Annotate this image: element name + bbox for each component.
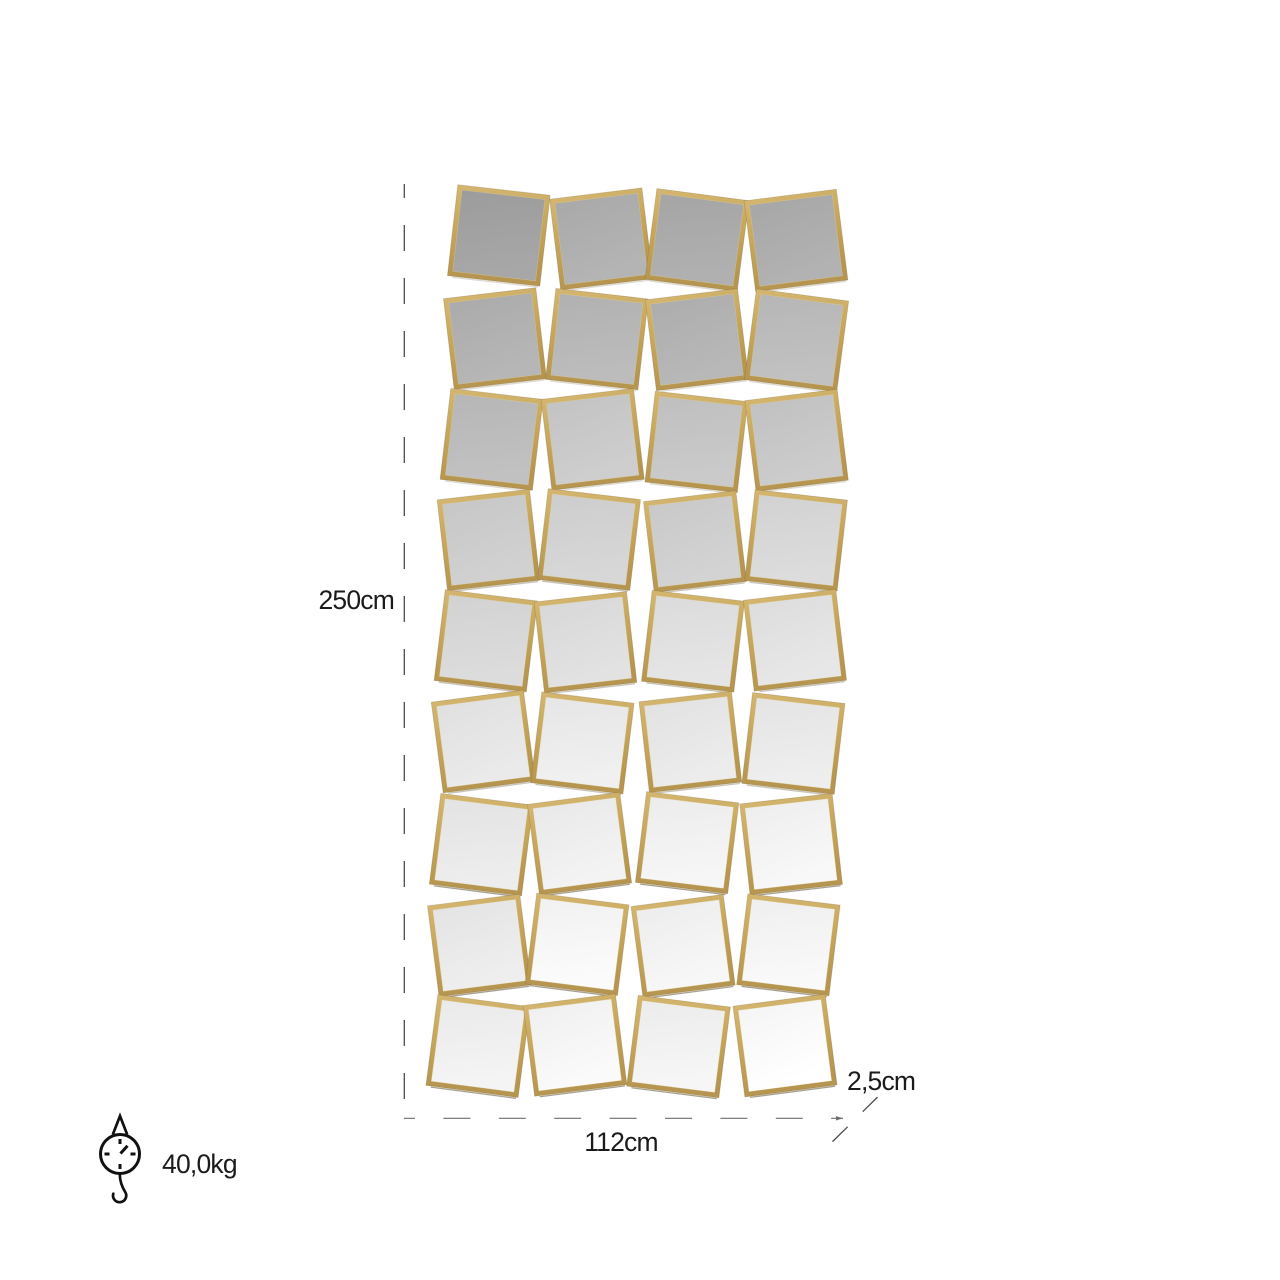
svg-text:112cm: 112cm <box>584 1127 658 1157</box>
svg-text:40,0kg: 40,0kg <box>162 1149 237 1179</box>
svg-text:2,5cm: 2,5cm <box>847 1066 915 1096</box>
svg-text:250cm: 250cm <box>318 585 394 615</box>
